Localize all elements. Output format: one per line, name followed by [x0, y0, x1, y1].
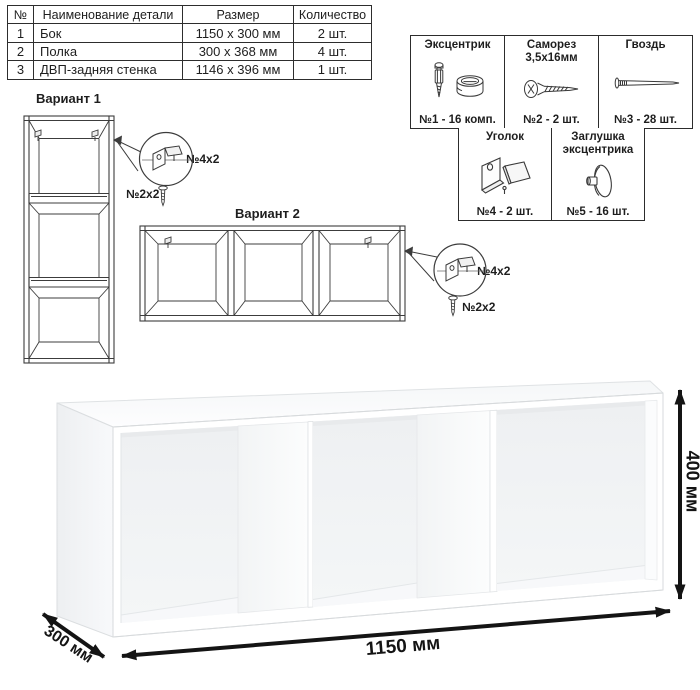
- variant2-screw-qty-label: №2х2: [462, 300, 495, 314]
- hardware-title: Гвоздь: [625, 39, 665, 52]
- hardware-item-nail: Гвоздь №3 - 28 шт.: [598, 36, 692, 128]
- hardware-item-screw: Саморез 3,5х16мм №2 - 2 шт.: [504, 36, 598, 128]
- hardware-title: Заглушка эксцентрика: [554, 131, 642, 157]
- table-row: 1 Бок 1150 x 300 мм 2 шт.: [8, 24, 372, 42]
- part-qty: 1 шт.: [294, 61, 372, 79]
- part-name: Бок: [34, 24, 183, 42]
- variant2-drawing: [140, 226, 405, 321]
- hardware-count: №5 - 16 шт.: [567, 206, 630, 218]
- part-size: 300 x 368 мм: [183, 42, 294, 60]
- hardware-box-row2: Уголок №4 - 2 шт. Заглушка эксцентрика: [458, 128, 645, 221]
- part-name: Полка: [34, 42, 183, 60]
- variant1-drawing: [24, 116, 114, 363]
- hardware-title: Эксцентрик: [424, 39, 490, 52]
- part-size: 1146 x 396 мм: [183, 61, 294, 79]
- parts-table: № Наименование детали Размер Количество …: [7, 5, 372, 80]
- hardware-count: №1 - 16 комп.: [419, 114, 496, 126]
- hardware-title: Саморез 3,5х16мм: [507, 39, 596, 65]
- self-tapping-screw-icon: [520, 65, 584, 114]
- dimension-height-label: 400 мм: [682, 440, 700, 524]
- shelf-unit: [57, 381, 663, 637]
- assembly-instruction-sheet: { "ink_color": "#2d2d2d", "dimension_col…: [0, 0, 700, 690]
- col-header-num: №: [8, 6, 34, 24]
- dimension-arrows: [43, 390, 680, 657]
- hardware-count: №4 - 2 шт.: [477, 206, 533, 218]
- hardware-item-eccentric: Эксцентрик №1 - 16 комп.: [411, 36, 504, 128]
- table-row: 3 ДВП-задняя стенка 1146 x 396 мм 1 шт.: [8, 61, 372, 79]
- eccentric-cam-bolt-icon: [427, 52, 489, 114]
- hardware-item-bracket: Уголок №4 - 2 шт.: [459, 128, 551, 220]
- corner-bracket-icon: [476, 144, 534, 206]
- col-header-size: Размер: [183, 6, 294, 24]
- part-num: 1: [8, 24, 34, 42]
- table-row: 2 Полка 300 x 368 мм 4 шт.: [8, 42, 372, 60]
- hardware-count: №3 - 28 шт.: [614, 114, 677, 126]
- dimension-width-label: 1150 мм: [332, 630, 473, 664]
- variant1-screw-qty-label: №2х2: [126, 187, 159, 201]
- col-header-qty: Количество: [294, 6, 372, 24]
- variant2-bracket-qty-label: №4х2: [477, 264, 510, 278]
- part-size: 1150 x 300 мм: [183, 24, 294, 42]
- variant1-bracket-qty-label: №4х2: [186, 152, 219, 166]
- hardware-item-cap: Заглушка эксцентрика №5 - 16 шт.: [551, 128, 644, 220]
- dimension-depth-label: 300 мм: [28, 615, 108, 676]
- nail-icon: [611, 52, 681, 114]
- hardware-title: Уголок: [486, 131, 524, 144]
- part-num: 3: [8, 61, 34, 79]
- part-num: 2: [8, 42, 34, 60]
- part-name: ДВП-задняя стенка: [34, 61, 183, 79]
- part-qty: 4 шт.: [294, 42, 372, 60]
- hardware-box-row1: Эксцентрик №1 - 16 комп. Саморез 3,5х16м…: [410, 35, 693, 129]
- hardware-count: №2 - 2 шт.: [523, 114, 579, 126]
- variant2-title: Вариант 2: [235, 206, 300, 221]
- col-header-name: Наименование детали: [34, 6, 183, 24]
- eccentric-cap-icon: [576, 157, 620, 206]
- table-header-row: № Наименование детали Размер Количество: [8, 6, 372, 24]
- part-qty: 2 шт.: [294, 24, 372, 42]
- variant1-title: Вариант 1: [36, 91, 101, 106]
